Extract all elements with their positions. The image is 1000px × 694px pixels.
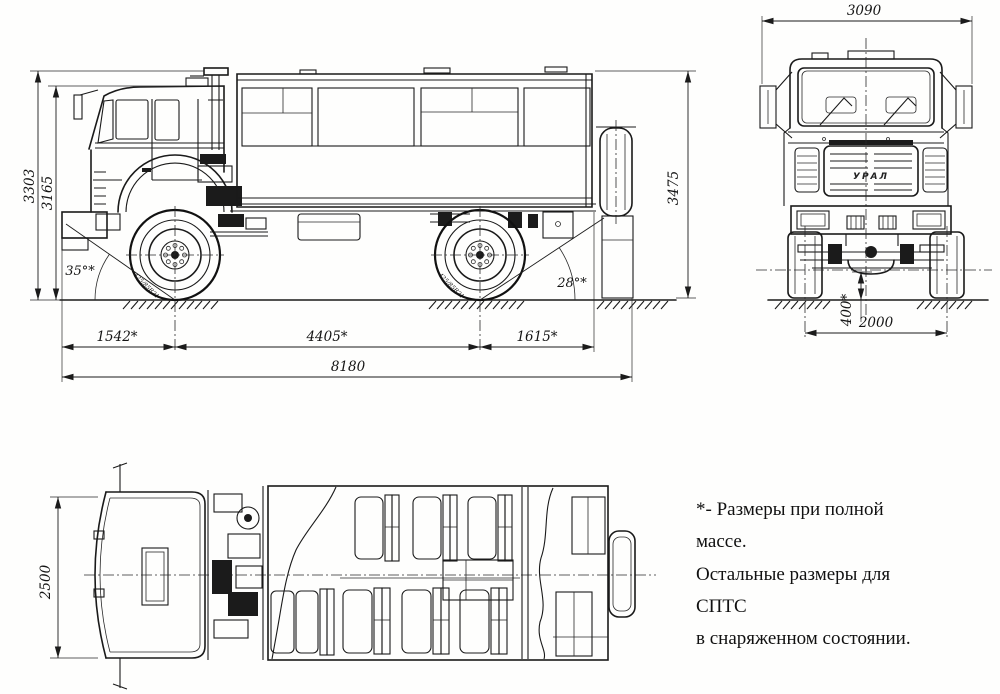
- svg-text:3303: 3303: [22, 169, 38, 203]
- body-window: [524, 88, 590, 146]
- tire-marking: 425/85R21: [131, 271, 160, 300]
- departure-angle-label: 28°*: [556, 276, 587, 291]
- dim-cab-width: 2500: [38, 497, 98, 658]
- svg-text:3165: 3165: [40, 176, 56, 210]
- mirror-side: [74, 95, 82, 119]
- approach-angle-label: 35°*: [65, 264, 95, 279]
- mirror-bottom: [113, 658, 127, 689]
- bench-top-right: [572, 497, 605, 554]
- svg-text:3090: 3090: [847, 3, 882, 19]
- body-window: [318, 88, 414, 146]
- front-axle: [798, 234, 944, 274]
- wiper: [884, 98, 916, 125]
- departure-angle: 28°*: [480, 218, 604, 300]
- front-step: [62, 238, 88, 250]
- seat-row-top: [355, 495, 605, 561]
- hood-louvres: [94, 172, 106, 204]
- dim-front-overhang: 1542*: [96, 329, 137, 345]
- spare-wheel-top: [609, 531, 635, 617]
- front-bumper-side: [62, 212, 107, 238]
- dimension-note: *- Размеры при полной массе. Остальные р…: [696, 494, 926, 655]
- rear-support: [602, 216, 633, 298]
- tire-marking: 425/85R21: [436, 271, 465, 300]
- dim-rear-height: 3475: [595, 71, 696, 298]
- body-window: [421, 88, 518, 146]
- front-view: УРАЛ: [756, 3, 992, 338]
- side-view: 425/85R21 425/85R21: [22, 67, 696, 382]
- svg-text:400*: 400*: [839, 293, 855, 327]
- front-wheels: [788, 232, 964, 298]
- ground-hatch-tail: [597, 301, 668, 309]
- break-line-right: [539, 488, 553, 659]
- dim-wheelbase: 4405*: [305, 329, 347, 345]
- ground-hatch: [775, 301, 972, 309]
- dim-overall-length: 8180: [331, 359, 366, 375]
- partition: [522, 487, 528, 659]
- chassis-cluster-top: [208, 486, 263, 660]
- top-view: 2500: [38, 463, 656, 689]
- note-line-2: Остальные размеры для СПТС: [696, 559, 926, 624]
- sun-visor: [886, 97, 916, 113]
- seat-row-bottom: [271, 588, 592, 656]
- bumper-front: [791, 206, 951, 234]
- note-line-1: *- Размеры при полной массе.: [696, 494, 926, 559]
- mirror-right: [940, 72, 972, 138]
- svg-text:3475: 3475: [666, 171, 682, 205]
- ground-hatch-front: [123, 301, 218, 309]
- mirror-top: [113, 463, 127, 492]
- svg-text:2500: 2500: [38, 564, 54, 600]
- body-window: [242, 88, 312, 146]
- grille-panel: УРАЛ: [795, 140, 947, 196]
- door-window: [116, 100, 148, 139]
- dim-rear-overhang: 1615*: [516, 329, 557, 345]
- svg-text:2000: 2000: [858, 315, 894, 331]
- ground-hatch-rear: [429, 301, 524, 309]
- note-line-3: в снаряженном состоянии.: [696, 623, 926, 655]
- blueprint-page: 425/85R21 425/85R21: [0, 0, 1000, 694]
- mirror-arm: [80, 90, 98, 95]
- wiper: [820, 98, 852, 125]
- break-line-left: [272, 487, 336, 659]
- spare-wheel-side: [596, 120, 636, 298]
- side-window: [155, 100, 179, 140]
- grille-label: УРАЛ: [853, 172, 889, 182]
- fuel-tank: [298, 214, 360, 240]
- body-top: [268, 486, 608, 660]
- dim-track: 2000: [805, 315, 947, 333]
- underbody-equipment: [298, 212, 573, 240]
- cab-top: [94, 463, 205, 689]
- front-wheel: 425/85R21: [126, 206, 224, 352]
- roof-hatch-side: [186, 78, 208, 86]
- van-body-side: [237, 67, 592, 207]
- mirror-left: [760, 72, 792, 138]
